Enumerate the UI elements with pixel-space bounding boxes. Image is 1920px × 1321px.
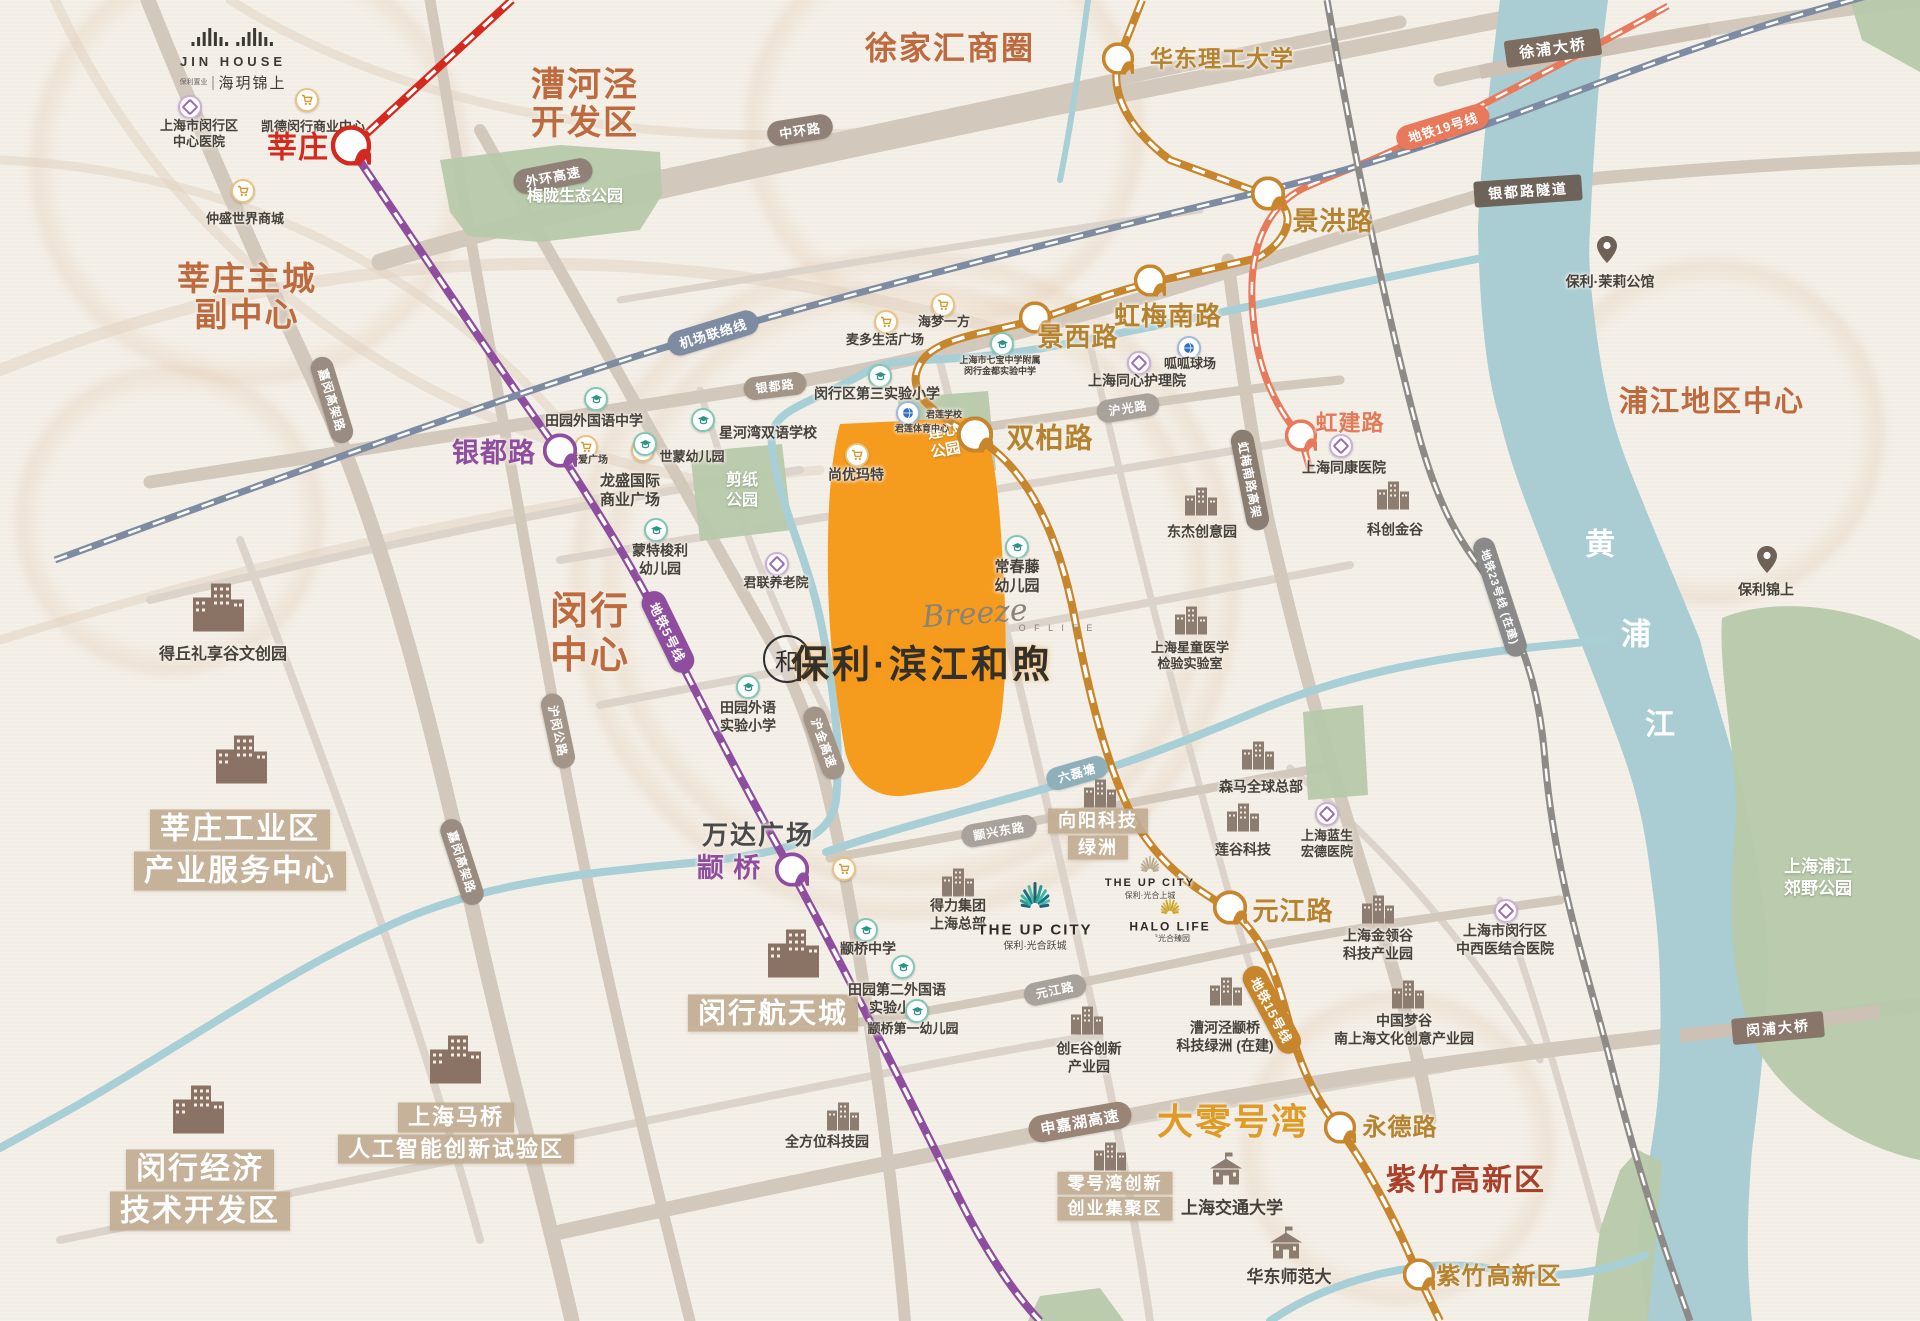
industry-building-icon <box>187 619 249 636</box>
metro-station-icon <box>1213 891 1247 925</box>
metro-station-icon <box>1324 1112 1356 1144</box>
school-icon <box>584 387 608 411</box>
map-label-layer: 中环路外环高速银都路机场联络线地铁19号线地铁5号线地铁15号线地铁23号线 (… <box>0 0 1920 1321</box>
poi-科创金谷 <box>1374 480 1412 515</box>
poi-上海星童医学 <box>1172 605 1210 640</box>
poi-label-华东师范大: 华东师范大 <box>1247 1266 1332 1287</box>
poi-label-上海交通大学: 上海交通大学 <box>1181 1197 1283 1218</box>
metro-station-icon <box>331 126 371 166</box>
poi-上海蓝生 <box>1315 802 1339 826</box>
poi-常春藤 <box>1005 535 1029 559</box>
school-icon <box>736 675 760 699</box>
poi-尚优玛特 <box>845 443 869 467</box>
road-pill-中环路: 中环路 <box>765 112 834 147</box>
poi-label-常春藤: 常春藤幼儿园 <box>994 558 1039 596</box>
station-label-华东理工大学: 华东理工大学 <box>1150 45 1294 74</box>
road-pill-申嘉湖高速: 申嘉湖高速 <box>1026 1100 1133 1145</box>
poi-bldg <box>1091 1141 1129 1176</box>
halo-title: HALO LIFE <box>1129 920 1210 935</box>
industry-building-icon <box>210 771 272 788</box>
metro-station-莘庄 <box>331 126 371 171</box>
poi-中国梦谷 <box>1389 979 1427 1014</box>
poi-创E谷创新 <box>1068 1005 1106 1040</box>
office-building-icon <box>1224 819 1262 836</box>
upcity_main-sub: 保利·光合跃城 <box>1003 941 1066 954</box>
metro-station-icon <box>775 853 809 887</box>
metro-station-双柏路 <box>957 417 993 458</box>
poi-华东师范大 <box>1266 1227 1306 1266</box>
station-label-元江路: 元江路 <box>1252 895 1333 928</box>
station-label-紫竹高新区: 紫竹高新区 <box>1437 1262 1562 1292</box>
location-map: 中环路外环高速银都路机场联络线地铁19号线地铁5号线地铁15号线地铁23号线 (… <box>0 0 1920 1321</box>
metro-station-颛桥 <box>775 853 809 892</box>
river-label-char: 浦 <box>1621 616 1651 654</box>
poi-label-蒙特梭利: 蒙特梭利幼儿园 <box>632 543 688 578</box>
bridge-badge-银都路隧道: 银都路隧道 <box>1473 174 1583 207</box>
school-icon <box>633 432 657 456</box>
zone-badge-上海马桥: 上海马桥人工智能创新试验区 <box>338 1101 574 1166</box>
metro-station-icon <box>1403 1259 1435 1291</box>
poi-label-保利·茉莉公馆: 保利·茉莉公馆 <box>1566 273 1655 291</box>
university-icon <box>1206 1174 1246 1191</box>
zone-badge-莘庄工业区: 莘庄工业区产业服务中心 <box>134 808 346 893</box>
road-pill-沪闵公路: 沪闵公路 <box>539 691 577 770</box>
station-label-虹建路: 虹建路 <box>1315 409 1384 437</box>
school-icon <box>891 955 915 979</box>
location-pin-icon <box>1597 250 1617 267</box>
river-label-char: 江 <box>1645 706 1675 744</box>
station-label-景洪路: 景洪路 <box>1292 205 1373 238</box>
poi-label-创E谷创新: 创E谷创新产业园 <box>1056 1041 1121 1076</box>
jinhouse-project: 海玥锦上 <box>218 72 286 93</box>
road-pill-嘉闵高架路: 嘉闵高架路 <box>308 354 356 446</box>
station-label-永德路: 永德路 <box>1363 1113 1438 1143</box>
area-label-徐家汇商圈: 徐家汇商圈 <box>865 30 1035 66</box>
halo-sub: 〝光合臻园 <box>1150 934 1190 944</box>
area-label-浦江地区中心: 浦江地区中心 <box>1619 386 1805 418</box>
bridge-badge-闵浦大桥: 闵浦大桥 <box>1731 1011 1825 1045</box>
poi-世蒙幼儿园 <box>633 432 657 456</box>
station-label-银都路: 银都路 <box>452 437 536 471</box>
poi-label-上海市闵行区: 上海市闵行区中西医结合医院 <box>1456 923 1554 958</box>
poi-label-田园外语: 田园外语实验小学 <box>720 700 776 735</box>
bridge-badge-徐浦大桥: 徐浦大桥 <box>1504 28 1603 68</box>
metro-station-icon <box>1251 177 1285 211</box>
poi-得力集团 <box>939 867 977 902</box>
poi-label-星河湾双语学校: 星河湾双语学校 <box>719 424 817 442</box>
poi-label-闵行区第三实验小学: 闵行区第三实验小学 <box>814 385 940 403</box>
poi-label-世蒙幼儿园: 世蒙幼儿园 <box>659 449 724 465</box>
metro-station-icon <box>1134 265 1166 297</box>
park-label-剪纸: 剪纸公园 <box>726 471 758 511</box>
poi-label-上海同心护理院: 上海同心护理院 <box>1088 372 1186 390</box>
poi-蒙特梭利 <box>644 518 668 542</box>
upcity-main-logo <box>1008 880 1062 915</box>
road-pill-地铁23号线 (在建): 地铁23号线 (在建) <box>1470 535 1529 659</box>
metro-station-icon <box>957 417 993 453</box>
office-building-icon <box>824 1118 862 1135</box>
poi-bigbldg <box>167 1082 229 1139</box>
poi-label-尚优玛特: 尚优玛特 <box>828 466 884 484</box>
poi-label-上海市七宝中学附属: 上海市七宝中学附属闵行金都实验中学 <box>959 355 1040 378</box>
jinhouse-bars-icon <box>190 27 276 47</box>
metro-station-紫竹高新区 <box>1403 1259 1435 1296</box>
area-label-闵行: 闵行中心 <box>550 590 630 678</box>
road-pill-嘉闵高架路: 嘉闵高架路 <box>437 816 486 908</box>
poi-label-田园第二外国语: 田园第二外国语实验小学 <box>848 982 946 1017</box>
station-label-虹梅南路: 虹梅南路 <box>1114 300 1222 333</box>
school-icon <box>1005 535 1029 559</box>
area-label-莘庄主城: 莘庄主城副中心 <box>177 261 317 333</box>
upcity-main-logo-rays <box>1008 880 1062 910</box>
location-pin-icon <box>1757 560 1777 577</box>
school-icon <box>905 999 929 1023</box>
park-label-梅陇生态公园: 梅陇生态公园 <box>527 188 623 206</box>
poi-田园外语 <box>736 675 760 699</box>
road-pill-沪光路: 沪光路 <box>1095 392 1161 425</box>
office-building-icon <box>1207 993 1245 1010</box>
station-label-景西路: 景西路 <box>1037 321 1118 354</box>
road-pill-地铁19号线: 地铁19号线 <box>1393 101 1493 153</box>
jinhouse-logo: JIN HOUSE 保利置业 海玥锦上 <box>179 27 286 93</box>
poi-label-东杰创意园: 东杰创意园 <box>1167 523 1237 541</box>
office-building-icon <box>1389 996 1427 1013</box>
poi-label-中国梦谷: 中国梦谷南上海文化创意产业园 <box>1334 1013 1474 1048</box>
industry-building-icon <box>762 965 824 982</box>
metro-station-元江路 <box>1213 891 1247 930</box>
poi-label-上海同康医院: 上海同康医院 <box>1302 459 1386 477</box>
poi-label-君联养老院: 君联养老院 <box>743 575 808 591</box>
road-pill-机场联络线: 机场联络线 <box>664 307 761 358</box>
office-building-icon <box>1182 503 1220 520</box>
poi-东杰创意园 <box>1182 486 1220 521</box>
upcity_main-title: THE UP CITY <box>977 922 1092 941</box>
industry-building-icon <box>424 1071 486 1088</box>
office-building-icon <box>1239 757 1277 774</box>
office-building-icon <box>1068 1022 1106 1039</box>
poi-保利·茉莉公馆 <box>1597 236 1617 268</box>
road-pill-元江路: 元江路 <box>1022 972 1088 1008</box>
poi-label-颛桥第一幼儿园: 颛桥第一幼儿园 <box>867 1021 958 1037</box>
upcity-small-logo <box>1133 854 1166 878</box>
poi-label-科创金谷: 科创金谷 <box>1367 521 1423 539</box>
poi-bigbldg <box>210 732 272 789</box>
area-label-大零号湾: 大零号湾 <box>1157 1103 1309 1141</box>
poi-label-仲盛世界商城: 仲盛世界商城 <box>206 211 284 227</box>
poi-田园第二外国语 <box>891 955 915 979</box>
poi-全方位科技园 <box>824 1101 862 1136</box>
poi-bldg <box>1081 778 1119 813</box>
poi-上海市七宝中学附属 <box>990 332 1014 356</box>
office-building-icon <box>1172 622 1210 639</box>
area-label-紫竹高新区: 紫竹高新区 <box>1386 1165 1546 1197</box>
property-breeze-script: Breeze <box>921 593 1029 635</box>
poi-上海交通大学 <box>1206 1153 1246 1192</box>
poi-仲盛世界商城 <box>231 179 255 203</box>
river-label-char: 黄 <box>1585 526 1615 564</box>
poi-颛桥第一幼儿园 <box>905 999 929 1023</box>
station-label-莘庄: 莘庄 <box>267 129 329 167</box>
poi-凯德闵行商业中心 <box>295 88 319 112</box>
road-pill-颛兴东路: 颛兴东路 <box>960 813 1039 849</box>
poi-君莲学校 <box>896 401 920 425</box>
poi-label-田园外国语中学: 田园外国语中学 <box>545 412 643 430</box>
shopping-cart-icon <box>874 310 898 334</box>
zone-badge-零号湾创新: 零号湾创新创业集聚区 <box>1058 1170 1173 1223</box>
industry-building-icon <box>167 1121 229 1138</box>
poi-label-上海市闵行区: 上海市闵行区中心医院 <box>160 118 238 151</box>
park-label-上海浦江: 上海浦江郊野公园 <box>1784 856 1852 900</box>
poi-label-漕河泾颛桥: 漕河泾颛桥科技绿洲 (在建) <box>1176 1020 1273 1055</box>
station-label-双柏路: 双柏路 <box>1006 421 1093 456</box>
metro-station-华东理工大学 <box>1102 43 1134 80</box>
poi-莲谷科技 <box>1224 802 1262 837</box>
shopping-cart-icon <box>832 857 856 881</box>
shopping-cart-icon <box>845 443 869 467</box>
upcity-small-logo-rays <box>1133 854 1166 873</box>
school-icon <box>990 332 1014 356</box>
poi-森马全球总部 <box>1239 740 1277 775</box>
property-breeze-sub: O F L I F E <box>1019 623 1096 633</box>
office-building-icon <box>1081 795 1119 812</box>
office-building-icon <box>1374 497 1412 514</box>
poi-bigbldg <box>424 1032 486 1089</box>
jinhouse-brand: 保利置业 <box>179 79 207 87</box>
metro-station-银都路 <box>543 434 577 473</box>
metro-station-景洪路 <box>1251 177 1285 216</box>
poi-label-君莲体育中心: 君莲体育中心 <box>895 423 949 434</box>
hospital-icon <box>1329 434 1353 458</box>
poi-label-龙盛国际: 龙盛国际商业广场 <box>600 472 660 510</box>
poi-保利锦上 <box>1757 546 1777 578</box>
jinhouse-title: JIN HOUSE <box>179 54 286 69</box>
hospital-icon <box>178 95 202 119</box>
poi-上海金领谷 <box>1359 894 1397 929</box>
poi-label-森马全球总部: 森马全球总部 <box>1219 778 1303 796</box>
poi-颛桥中学 <box>854 918 878 942</box>
road-pill-虹梅南路高架: 虹梅南路高架 <box>1229 428 1271 533</box>
hospital-icon <box>1315 802 1339 826</box>
poi-星河湾双语学校 <box>691 408 715 432</box>
poi-label-上海星童医学: 上海星童医学检验实验室 <box>1151 640 1229 673</box>
zone-badge-闵行经济: 闵行经济技术开发区 <box>110 1148 290 1233</box>
poi-label-麦多生活广场: 麦多生活广场 <box>846 332 924 348</box>
poi-label-颛桥中学: 颛桥中学 <box>840 940 896 958</box>
metro-station-icon <box>543 434 577 468</box>
area-label-漕河泾: 漕河泾开发区 <box>531 66 639 142</box>
poi-得丘礼享谷文创园 <box>187 580 249 637</box>
metro-station-虹建路 <box>1285 420 1317 457</box>
school-icon <box>691 408 715 432</box>
station-label-颛桥: 颛 桥 <box>697 852 762 886</box>
road-pill-沪金高速: 沪金高速 <box>800 703 848 782</box>
poi-label-上海金领谷: 上海金领谷科技产业园 <box>1343 928 1413 963</box>
area-label-万达广场: 万达广场 <box>702 821 814 849</box>
university-icon <box>1266 1248 1306 1265</box>
office-building-icon <box>1359 911 1397 928</box>
hospital-icon <box>1494 899 1518 923</box>
upcity_small-title: THE UP CITY <box>1105 877 1195 891</box>
poi-cart <box>832 857 856 881</box>
poi-上海市闵行区 <box>178 95 202 119</box>
metro-station-永德路 <box>1324 1112 1356 1149</box>
poi-label-莲谷科技: 莲谷科技 <box>1215 841 1271 859</box>
poi-麦多生活广场 <box>874 310 898 334</box>
upcity_small-sub: 保利·光合上城 <box>1125 891 1176 901</box>
poi-田园外国语中学 <box>584 387 608 411</box>
office-building-icon <box>1091 1158 1129 1175</box>
sports-court-icon <box>896 401 920 425</box>
poi-label-全方位科技园: 全方位科技园 <box>785 1133 869 1151</box>
poi-bigbldg <box>762 926 824 983</box>
zone-badge-闵行航天城: 闵行航天城 <box>688 993 858 1034</box>
poi-漕河泾颛桥 <box>1207 976 1245 1011</box>
metro-station-icon <box>1102 43 1134 75</box>
metro-station-虹梅南路 <box>1134 265 1166 302</box>
poi-label-上海蓝生: 上海蓝生宏德医院 <box>1301 828 1353 861</box>
metro-station-icon <box>1285 420 1317 452</box>
school-icon <box>854 918 878 942</box>
poi-君联养老院 <box>765 552 789 576</box>
poi-label-呱呱球场: 呱呱球场 <box>1164 356 1216 372</box>
hospital-icon <box>765 552 789 576</box>
road-pill-银都路: 银都路 <box>742 371 807 402</box>
school-icon <box>644 518 668 542</box>
shopping-cart-icon <box>295 88 319 112</box>
poi-label-海梦一方: 海梦一方 <box>918 314 970 330</box>
poi-上海市闵行区 <box>1494 899 1518 923</box>
shopping-cart-icon <box>231 179 255 203</box>
poi-label-得丘礼享谷文创园: 得丘礼享谷文创园 <box>159 645 287 665</box>
poi-上海同康医院 <box>1329 434 1353 458</box>
poi-label-保利锦上: 保利锦上 <box>1738 581 1794 599</box>
property-name: 保利·滨江和煦 <box>791 634 1053 689</box>
road-pill-地铁5号线: 地铁5号线 <box>637 587 698 677</box>
